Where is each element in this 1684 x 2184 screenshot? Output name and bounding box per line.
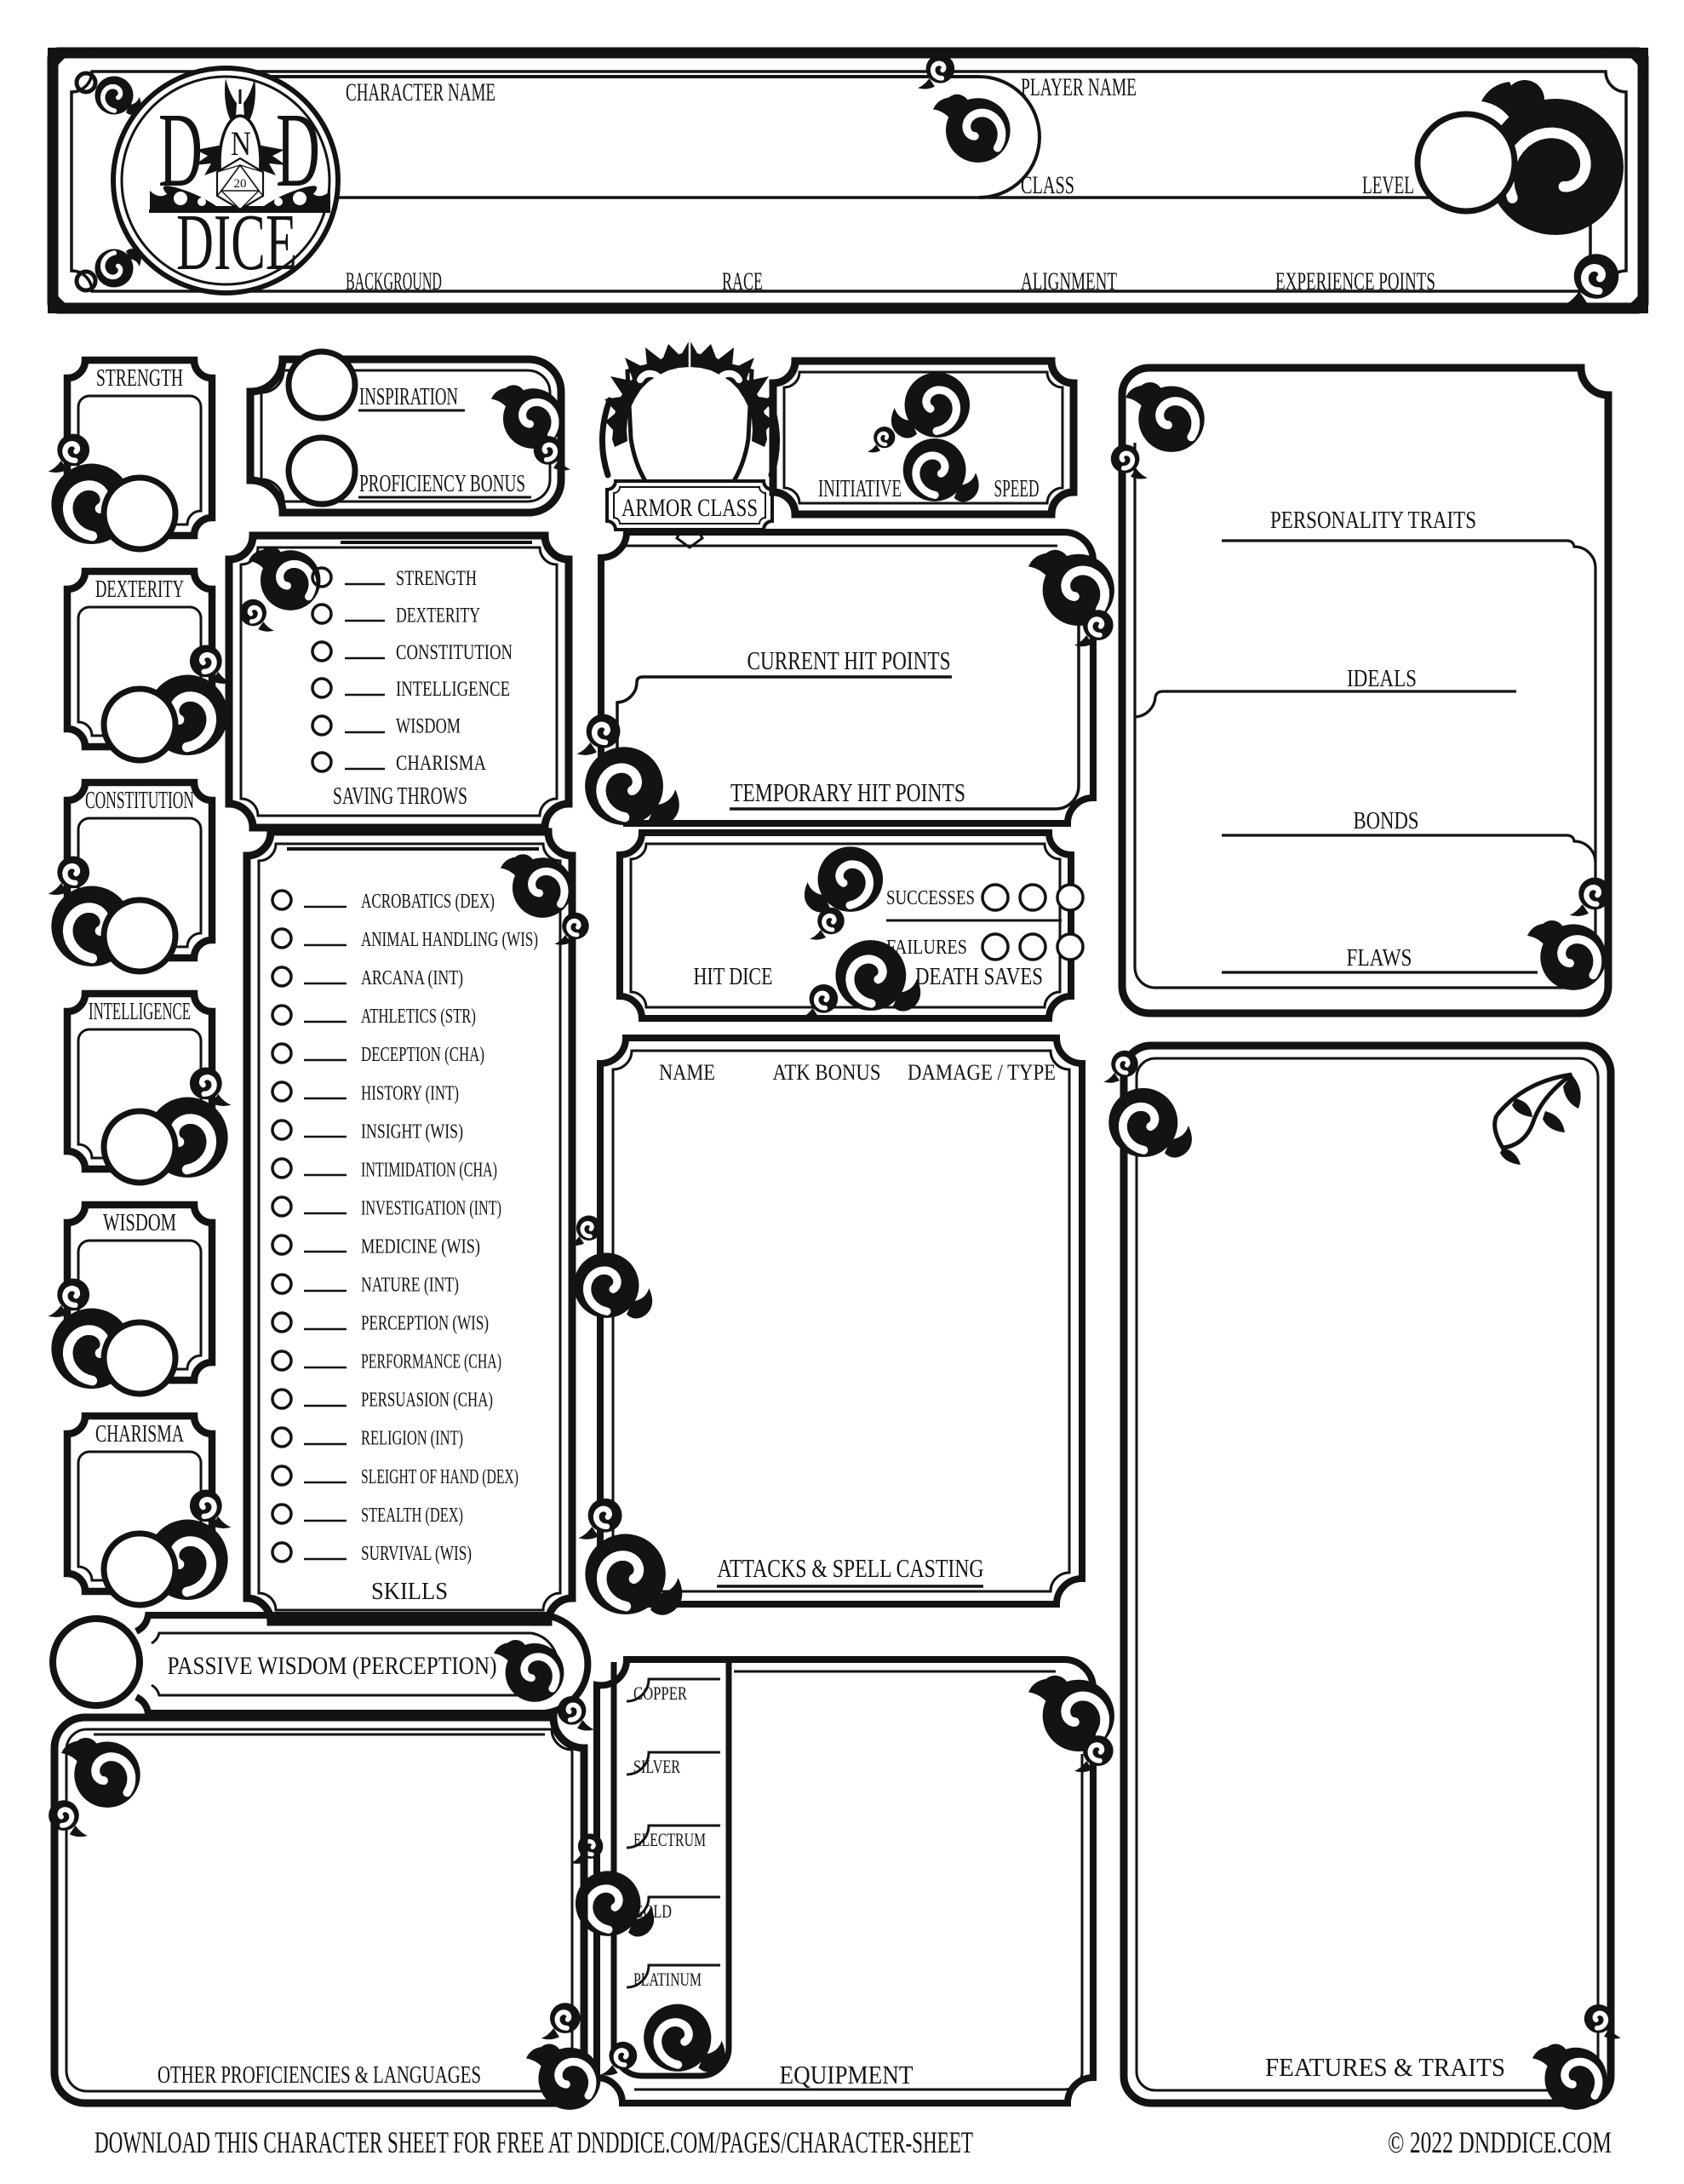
svg-text:ALIGNMENT: ALIGNMENT	[1021, 267, 1117, 295]
svg-text:DOWNLOAD THIS CHARACTER SHEET: DOWNLOAD THIS CHARACTER SHEET FOR FREE A…	[95, 2125, 973, 2159]
svg-text:INITIATIVE: INITIATIVE	[818, 476, 902, 502]
svg-text:D: D	[276, 92, 320, 209]
svg-text:BACKGROUND: BACKGROUND	[346, 267, 442, 295]
svg-text:STRENGTH: STRENGTH	[396, 567, 477, 590]
svg-text:SURVIVAL (WIS): SURVIVAL (WIS)	[361, 1543, 472, 1565]
svg-text:DICE: DICE	[176, 198, 297, 287]
svg-text:WISDOM: WISDOM	[103, 1209, 176, 1236]
svg-text:FLAWS: FLAWS	[1347, 944, 1412, 972]
svg-text:DEXTERITY: DEXTERITY	[95, 576, 184, 603]
svg-text:ATTACKS & SPELL CASTING: ATTACKS & SPELL CASTING	[718, 1553, 984, 1583]
svg-text:ARCANA (INT): ARCANA (INT)	[361, 967, 463, 989]
svg-text:OTHER PROFICIENCIES & LANGUAGE: OTHER PROFICIENCIES & LANGUAGES	[158, 2061, 481, 2089]
svg-text:DEXTERITY: DEXTERITY	[396, 604, 480, 627]
svg-text:20: 20	[234, 177, 247, 191]
svg-text:EQUIPMENT: EQUIPMENT	[780, 2060, 914, 2089]
svg-text:HISTORY (INT): HISTORY (INT)	[361, 1082, 459, 1104]
svg-text:PERSONALITY TRAITS: PERSONALITY TRAITS	[1270, 507, 1476, 534]
svg-text:BONDS: BONDS	[1354, 807, 1419, 834]
svg-text:STEALTH (DEX): STEALTH (DEX)	[361, 1505, 463, 1527]
svg-text:© 2022 DNDDICE.COM: © 2022 DNDDICE.COM	[1388, 2125, 1612, 2159]
svg-text:CHARACTER NAME: CHARACTER NAME	[346, 78, 495, 106]
svg-text:PROFICIENCY BONUS: PROFICIENCY BONUS	[359, 471, 525, 497]
svg-text:INTIMIDATION (CHA): INTIMIDATION (CHA)	[361, 1159, 497, 1181]
svg-text:SPEED: SPEED	[994, 476, 1040, 502]
svg-text:HIT DICE: HIT DICE	[694, 964, 773, 990]
svg-text:CHARISMA: CHARISMA	[95, 1420, 184, 1447]
svg-text:PLATINUM: PLATINUM	[633, 1969, 702, 1990]
svg-text:INTELLIGENCE: INTELLIGENCE	[89, 998, 191, 1025]
svg-text:ARMOR CLASS: ARMOR CLASS	[621, 494, 758, 522]
svg-text:ELECTRUM: ELECTRUM	[633, 1829, 706, 1850]
svg-text:N: N	[231, 124, 251, 163]
svg-text:SKILLS: SKILLS	[371, 1578, 448, 1605]
svg-text:SILVER: SILVER	[633, 1756, 680, 1777]
svg-text:FAILURES: FAILURES	[886, 937, 967, 959]
svg-text:D: D	[158, 92, 203, 209]
svg-text:CURRENT HIT POINTS: CURRENT HIT POINTS	[747, 645, 951, 675]
svg-text:TEMPORARY HIT POINTS: TEMPORARY HIT POINTS	[730, 777, 965, 807]
svg-text:MEDICINE (WIS): MEDICINE (WIS)	[361, 1235, 480, 1258]
svg-text:PLAYER NAME: PLAYER NAME	[1021, 73, 1137, 101]
svg-text:ATK BONUS: ATK BONUS	[773, 1060, 881, 1085]
svg-text:LEVEL: LEVEL	[1362, 171, 1414, 199]
svg-text:RACE: RACE	[722, 267, 763, 295]
svg-text:PERCEPTION (WIS): PERCEPTION (WIS)	[361, 1313, 489, 1335]
svg-text:FEATURES & TRAITS: FEATURES & TRAITS	[1265, 2052, 1505, 2082]
svg-text:PERSUASION (CHA): PERSUASION (CHA)	[361, 1390, 493, 1412]
svg-text:ATHLETICS (STR): ATHLETICS (STR)	[361, 1006, 476, 1028]
svg-text:NAME: NAME	[659, 1060, 715, 1085]
svg-text:CLASS: CLASS	[1021, 171, 1074, 199]
svg-text:INSIGHT (WIS): INSIGHT (WIS)	[361, 1121, 463, 1143]
svg-text:COPPER: COPPER	[633, 1682, 687, 1704]
svg-text:INTELLIGENCE: INTELLIGENCE	[396, 678, 510, 701]
svg-text:WISDOM: WISDOM	[396, 715, 461, 738]
svg-text:CONSTITUTION: CONSTITUTION	[85, 787, 194, 814]
svg-text:SAVING THROWS: SAVING THROWS	[333, 782, 467, 810]
svg-text:RELIGION (INT): RELIGION (INT)	[361, 1428, 463, 1450]
svg-text:CHARISMA: CHARISMA	[396, 752, 486, 775]
svg-text:PASSIVE WISDOM (PERCEPTION): PASSIVE WISDOM (PERCEPTION)	[168, 1652, 497, 1680]
svg-text:SLEIGHT OF HAND (DEX): SLEIGHT OF HAND (DEX)	[361, 1466, 518, 1488]
svg-text:CONSTITUTION: CONSTITUTION	[396, 641, 513, 664]
svg-text:SUCCESSES: SUCCESSES	[886, 887, 975, 909]
svg-text:INSPIRATION: INSPIRATION	[359, 384, 458, 410]
svg-text:ACROBATICS (DEX): ACROBATICS (DEX)	[361, 891, 495, 913]
svg-text:NATURE (INT): NATURE (INT)	[361, 1275, 459, 1297]
svg-text:EXPERIENCE POINTS: EXPERIENCE POINTS	[1275, 267, 1435, 295]
svg-text:DEATH SAVES: DEATH SAVES	[915, 964, 1043, 990]
svg-text:IDEALS: IDEALS	[1347, 665, 1417, 692]
svg-text:DAMAGE / TYPE: DAMAGE / TYPE	[908, 1060, 1056, 1085]
svg-text:INVESTIGATION (INT): INVESTIGATION (INT)	[361, 1197, 501, 1219]
svg-text:DECEPTION (CHA): DECEPTION (CHA)	[361, 1044, 484, 1066]
svg-text:ANIMAL HANDLING (WIS): ANIMAL HANDLING (WIS)	[361, 929, 538, 951]
svg-text:STRENGTH: STRENGTH	[96, 364, 183, 392]
svg-text:PERFORMANCE (CHA): PERFORMANCE (CHA)	[361, 1351, 501, 1373]
